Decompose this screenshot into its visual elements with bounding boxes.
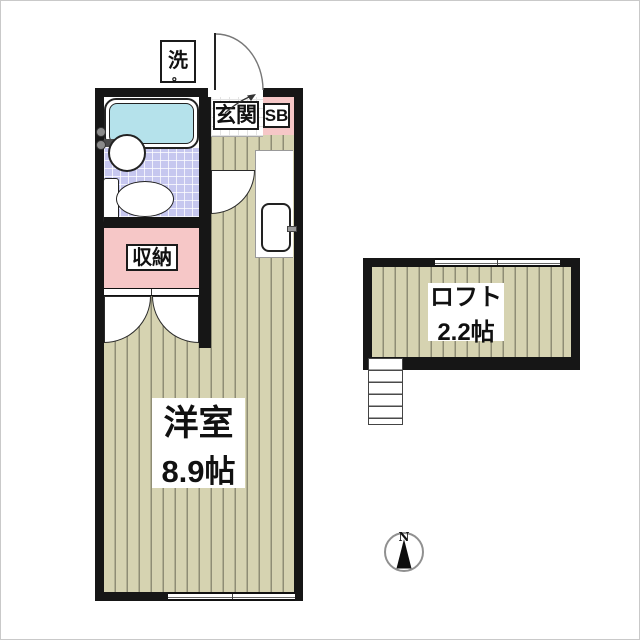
kitchen-faucet-handle (287, 226, 297, 232)
compass-north-text: N (399, 530, 410, 544)
hallway-divider-wall (199, 97, 211, 348)
closet-track-tick (151, 289, 152, 295)
washer-space: 洗 。 (160, 40, 196, 83)
loft-window-tick (497, 260, 498, 265)
closet-door-track (104, 288, 199, 296)
shoe-box-label-text: SB (265, 107, 289, 124)
compass: N (384, 532, 424, 572)
compass-north-label: N (384, 530, 424, 544)
closet-label-text: 収納 (132, 248, 172, 268)
loft-label-text: ロフト (430, 277, 502, 312)
closet-label: 収納 (126, 244, 178, 271)
faucet-knob-bottom (96, 140, 106, 150)
loft-window (435, 258, 560, 267)
bathroom-sink (108, 134, 146, 172)
floorplan-canvas: 収納 玄関 SB 洗 。 ロフト 2.2帖 洋室 8.9帖 (0, 0, 640, 640)
bath-closet-divider-wall (104, 217, 211, 228)
faucet-knob-top (96, 127, 106, 137)
toilet-bowl (116, 181, 174, 217)
entrance-label-text: 玄関 (215, 105, 257, 126)
loft-ladder (368, 358, 403, 425)
washer-mark-text: 。 (172, 73, 184, 79)
entrance-door-leaf (214, 33, 216, 90)
entrance-doorway-gap (208, 88, 263, 97)
loft-label: ロフト 2.2帖 (428, 283, 504, 341)
window-tick (232, 594, 233, 599)
main-room-size-text: 8.9帖 (161, 446, 235, 491)
entrance-door-arc (216, 34, 263, 90)
entrance-label: 玄関 (213, 101, 259, 130)
main-room-label: 洋室 8.9帖 (152, 398, 245, 488)
main-room-window (168, 592, 295, 601)
loft-size-text: 2.2帖 (437, 312, 494, 347)
main-room-label-text: 洋室 (163, 395, 233, 446)
shoe-box-label: SB (263, 103, 290, 128)
